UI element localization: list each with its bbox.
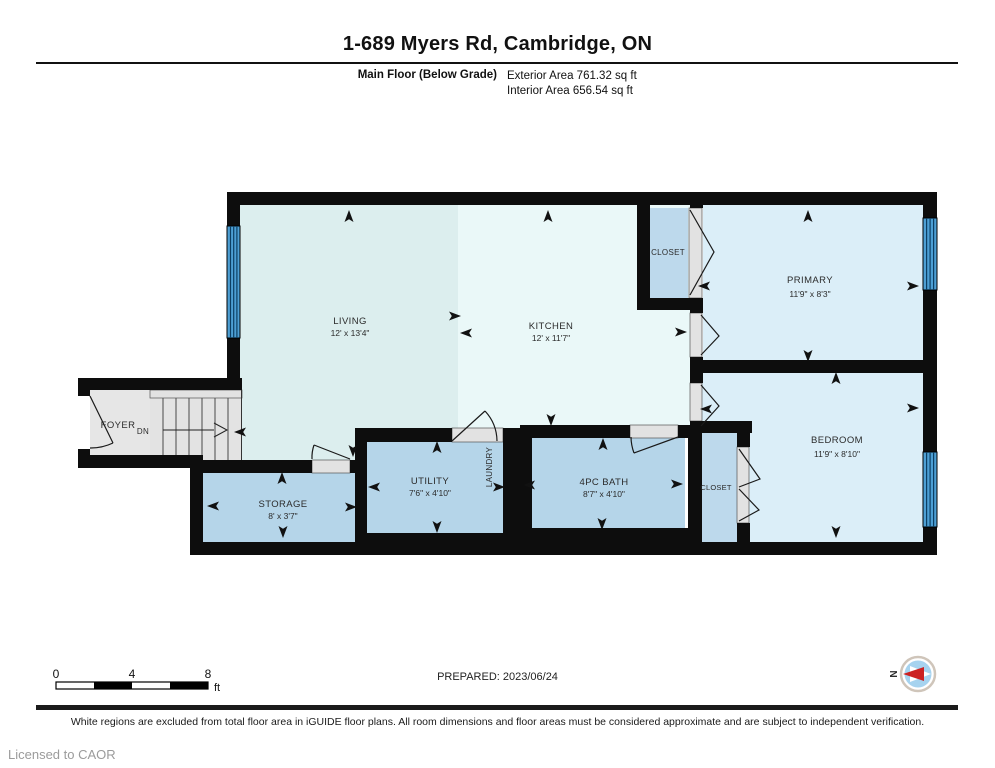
- footer-divider: [36, 705, 958, 710]
- bedroom-window: [923, 452, 937, 527]
- stairs-dn-label: DN: [137, 427, 149, 436]
- floorplan-page: 1-689 Myers Rd, Cambridge, ON Main Floor…: [0, 0, 995, 768]
- bedroom-door-opening: [690, 383, 702, 421]
- storage-dims: 8' x 3'7": [268, 511, 297, 521]
- floorplan-drawing: LIVING 12' x 13'4" KITCHEN 12' x 11'7" P…: [0, 0, 995, 768]
- bath-door-opening: [630, 425, 678, 438]
- bedroom-closet-label: CLOSET: [700, 483, 731, 492]
- utility-label: UTILITY: [411, 476, 449, 487]
- utility-dims: 7'6" x 4'10": [409, 488, 451, 498]
- disclaimer-text: White regions are excluded from total fl…: [0, 716, 995, 728]
- bedroom-label: BEDROOM: [811, 435, 863, 446]
- laundry-label: LAUNDRY: [485, 447, 494, 488]
- living-room-label: LIVING: [333, 316, 367, 327]
- storage-door-opening: [312, 460, 350, 473]
- license-text: Licensed to CAOR: [8, 747, 116, 762]
- living-window: [227, 226, 240, 338]
- primary-window: [923, 218, 937, 290]
- primary-door-opening: [690, 313, 702, 357]
- scale-bar-segment: [170, 682, 208, 689]
- stair-header: [150, 390, 242, 398]
- bath-dims: 8'7" x 4'10": [583, 489, 625, 499]
- bedroom-dims: 11'9" x 8'10": [814, 449, 860, 459]
- prepared-date: PREPARED: 2023/06/24: [0, 671, 995, 683]
- kitchen-label: KITCHEN: [529, 321, 574, 332]
- primary-label: PRIMARY: [787, 275, 833, 286]
- scale-bar-segment: [94, 682, 132, 689]
- kitchen-dims: 12' x 11'7": [532, 333, 570, 343]
- foyer-label: FOYER: [101, 420, 136, 431]
- primary-closet-label: CLOSET: [651, 248, 685, 257]
- living-room-dims: 12' x 13'4": [331, 328, 370, 338]
- storage-label: STORAGE: [258, 499, 307, 510]
- bath-label: 4PC BATH: [580, 477, 629, 488]
- primary-dims: 11'9" x 8'3": [789, 289, 830, 299]
- scale-unit-label: ft: [214, 682, 220, 694]
